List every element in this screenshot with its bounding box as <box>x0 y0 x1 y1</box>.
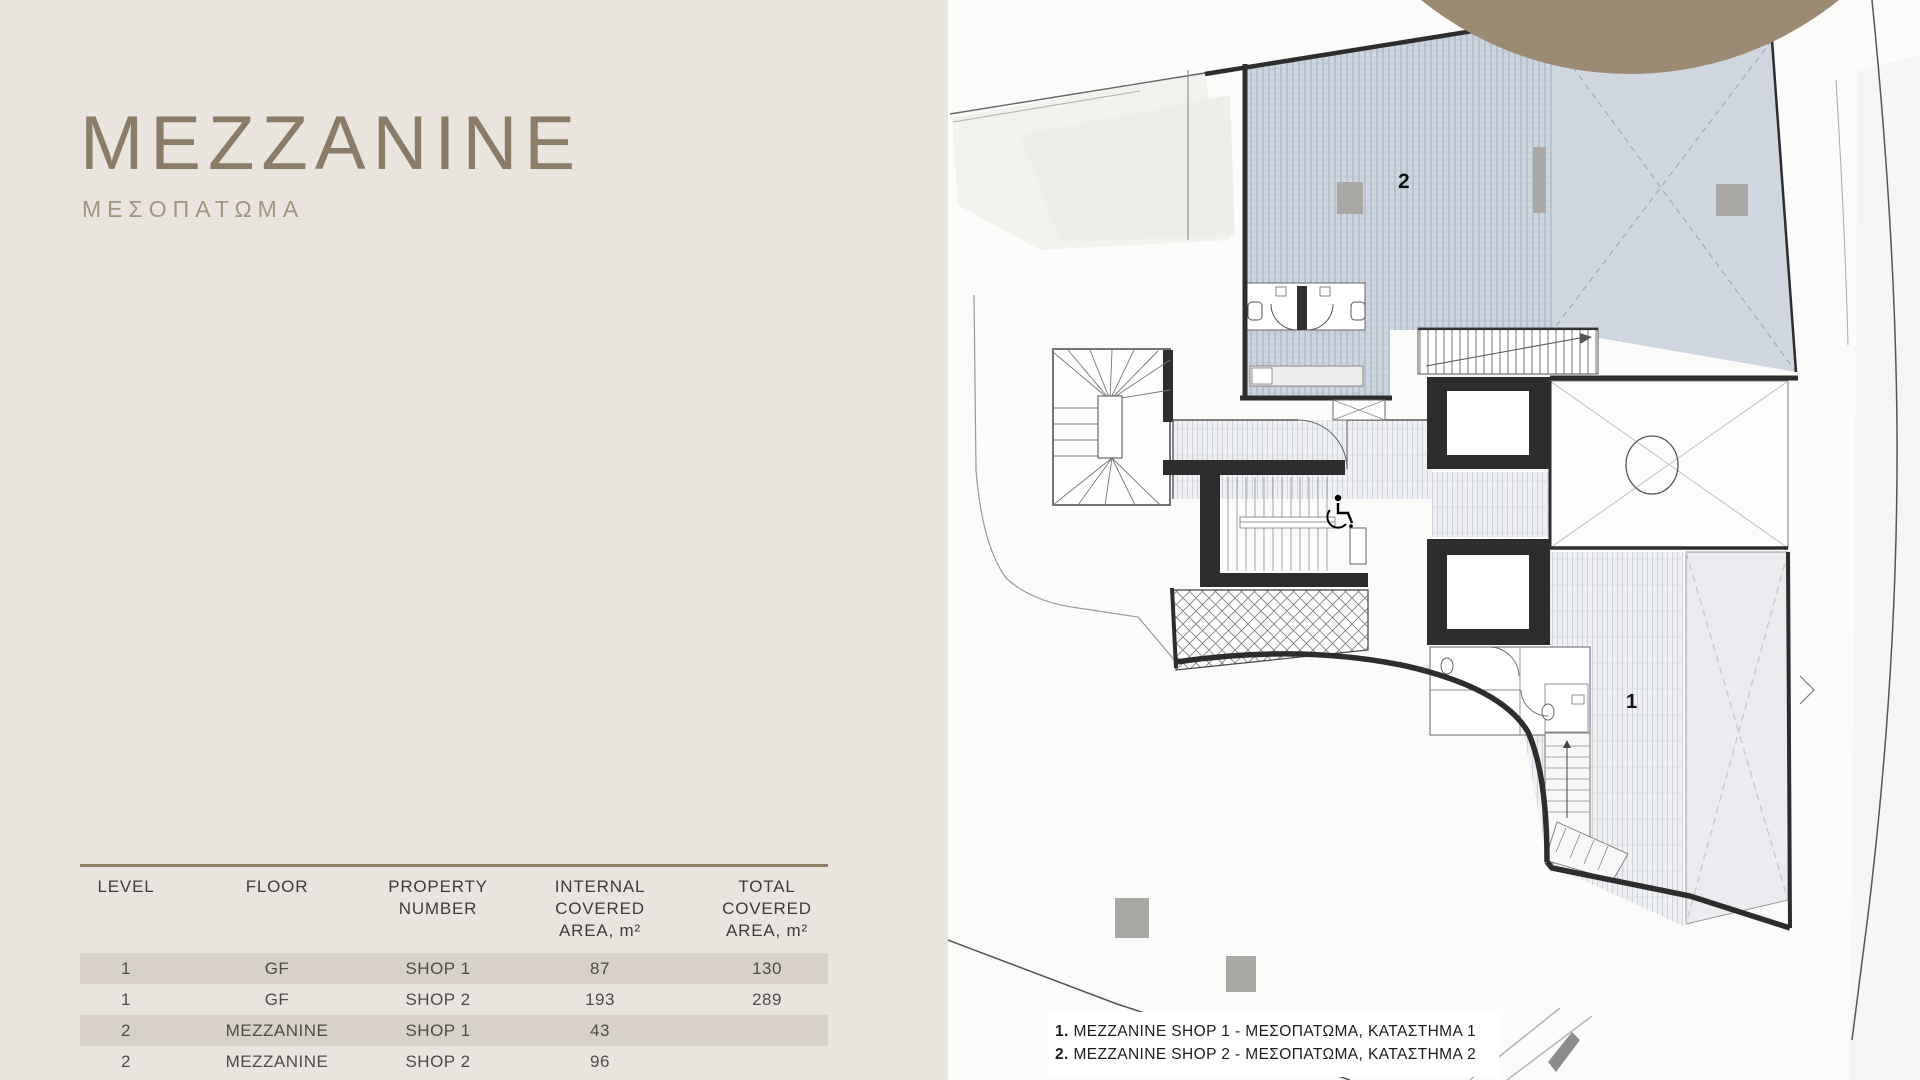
area-table: LEVELFLOORPROPERTYNUMBERINTERNALCOVEREDA… <box>80 864 828 1077</box>
table-cell: MEZZANINE <box>172 1052 382 1072</box>
table-row: 2MEZZANINESHOP 143 <box>80 1015 828 1046</box>
room-circle-column <box>1550 381 1788 548</box>
table-cell: SHOP 1 <box>382 959 494 979</box>
table-cell: 2 <box>80 1052 172 1072</box>
furniture-shop2 <box>1250 366 1363 386</box>
legend-text-2: MEZZANINE SHOP 2 - ΜΕΣΟΠΑΤΩΜΑ, ΚΑΤΑΣΤΗΜΑ… <box>1069 1046 1476 1063</box>
void-area <box>1553 22 1796 372</box>
table-row: 1GFSHOP 2193289 <box>80 984 828 1015</box>
page-title: MEZZANINE <box>80 100 582 187</box>
wc-shop2 <box>1243 283 1365 330</box>
mezzanine-railing <box>1418 328 1598 374</box>
floor-plan-panel: 2 1 1. MEZZANINE SHOP 1 - ΜΕΣΟΠΑΤΩΜΑ, ΚΑ… <box>948 0 1920 1080</box>
table-header-cell: FLOOR <box>172 876 382 898</box>
table-cell: MEZZANINE <box>172 1021 382 1041</box>
table-cell: GF <box>172 959 382 979</box>
legend-line-shop2: 2. MEZZANINE SHOP 2 - ΜΕΣΟΠΑΤΩΜΑ, ΚΑΤΑΣΤ… <box>1055 1043 1485 1066</box>
page-subtitle-greek: ΜΕΣΟΠΑΤΩΜΑ <box>82 196 304 223</box>
table-cell: SHOP 2 <box>382 990 494 1010</box>
left-info-panel: MEZZANINE ΜΕΣΟΠΑΤΩΜΑ LEVELFLOORPROPERTYN… <box>0 0 949 1080</box>
table-row: 2MEZZANINESHOP 296 <box>80 1046 828 1077</box>
table-header-cell: TOTALCOVEREDAREA, m² <box>706 876 828 941</box>
table-cell: 87 <box>494 959 706 979</box>
table-cell: 193 <box>494 990 706 1010</box>
table-cell: 43 <box>494 1021 706 1041</box>
table-header-cell: LEVEL <box>80 876 172 898</box>
legend-num-2: 2. <box>1055 1046 1069 1063</box>
table-cell: 1 <box>80 959 172 979</box>
table-cell: 1 <box>80 990 172 1010</box>
area-table-body: 1GFSHOP 1871301GFSHOP 21932892MEZZANINES… <box>80 953 828 1077</box>
boundary-chevron <box>1800 676 1814 704</box>
legend-num-1: 1. <box>1055 1023 1069 1040</box>
winder-staircase <box>1053 349 1173 505</box>
plan-label-shop1: 1 <box>1626 691 1637 713</box>
table-header-cell: PROPERTYNUMBER <box>382 876 494 920</box>
void-strip-shop1 <box>1686 552 1788 924</box>
table-header-cell: INTERNALCOVEREDAREA, m² <box>494 876 706 941</box>
table-cell: 130 <box>706 959 828 979</box>
table-cell: 2 <box>80 1021 172 1041</box>
brochure-page: MEZZANINE ΜΕΣΟΠΑΤΩΜΑ LEVELFLOORPROPERTYN… <box>0 0 1920 1080</box>
area-table-header: LEVELFLOORPROPERTYNUMBERINTERNALCOVEREDA… <box>80 867 828 953</box>
table-row: 1GFSHOP 187130 <box>80 953 828 984</box>
legend-line-shop1: 1. MEZZANINE SHOP 1 - ΜΕΣΟΠΑΤΩΜΑ, ΚΑΤΑΣΤ… <box>1055 1020 1485 1043</box>
table-cell: 289 <box>706 990 828 1010</box>
table-cell: GF <box>172 990 382 1010</box>
table-cell: SHOP 1 <box>382 1021 494 1041</box>
niche-marker <box>1333 400 1385 420</box>
plan-label-shop2: 2 <box>1398 170 1410 193</box>
plan-legend: 1. MEZZANINE SHOP 1 - ΜΕΣΟΠΑΤΩΜΑ, ΚΑΤΑΣΤ… <box>1047 1012 1499 1077</box>
table-cell: 96 <box>494 1052 706 1072</box>
legend-text-1: MEZZANINE SHOP 1 - ΜΕΣΟΠΑΤΩΜΑ, ΚΑΤΑΣΤΗΜΑ… <box>1069 1023 1476 1040</box>
table-cell: SHOP 2 <box>382 1052 494 1072</box>
floor-plan-drawing: 2 1 <box>948 0 1920 1080</box>
